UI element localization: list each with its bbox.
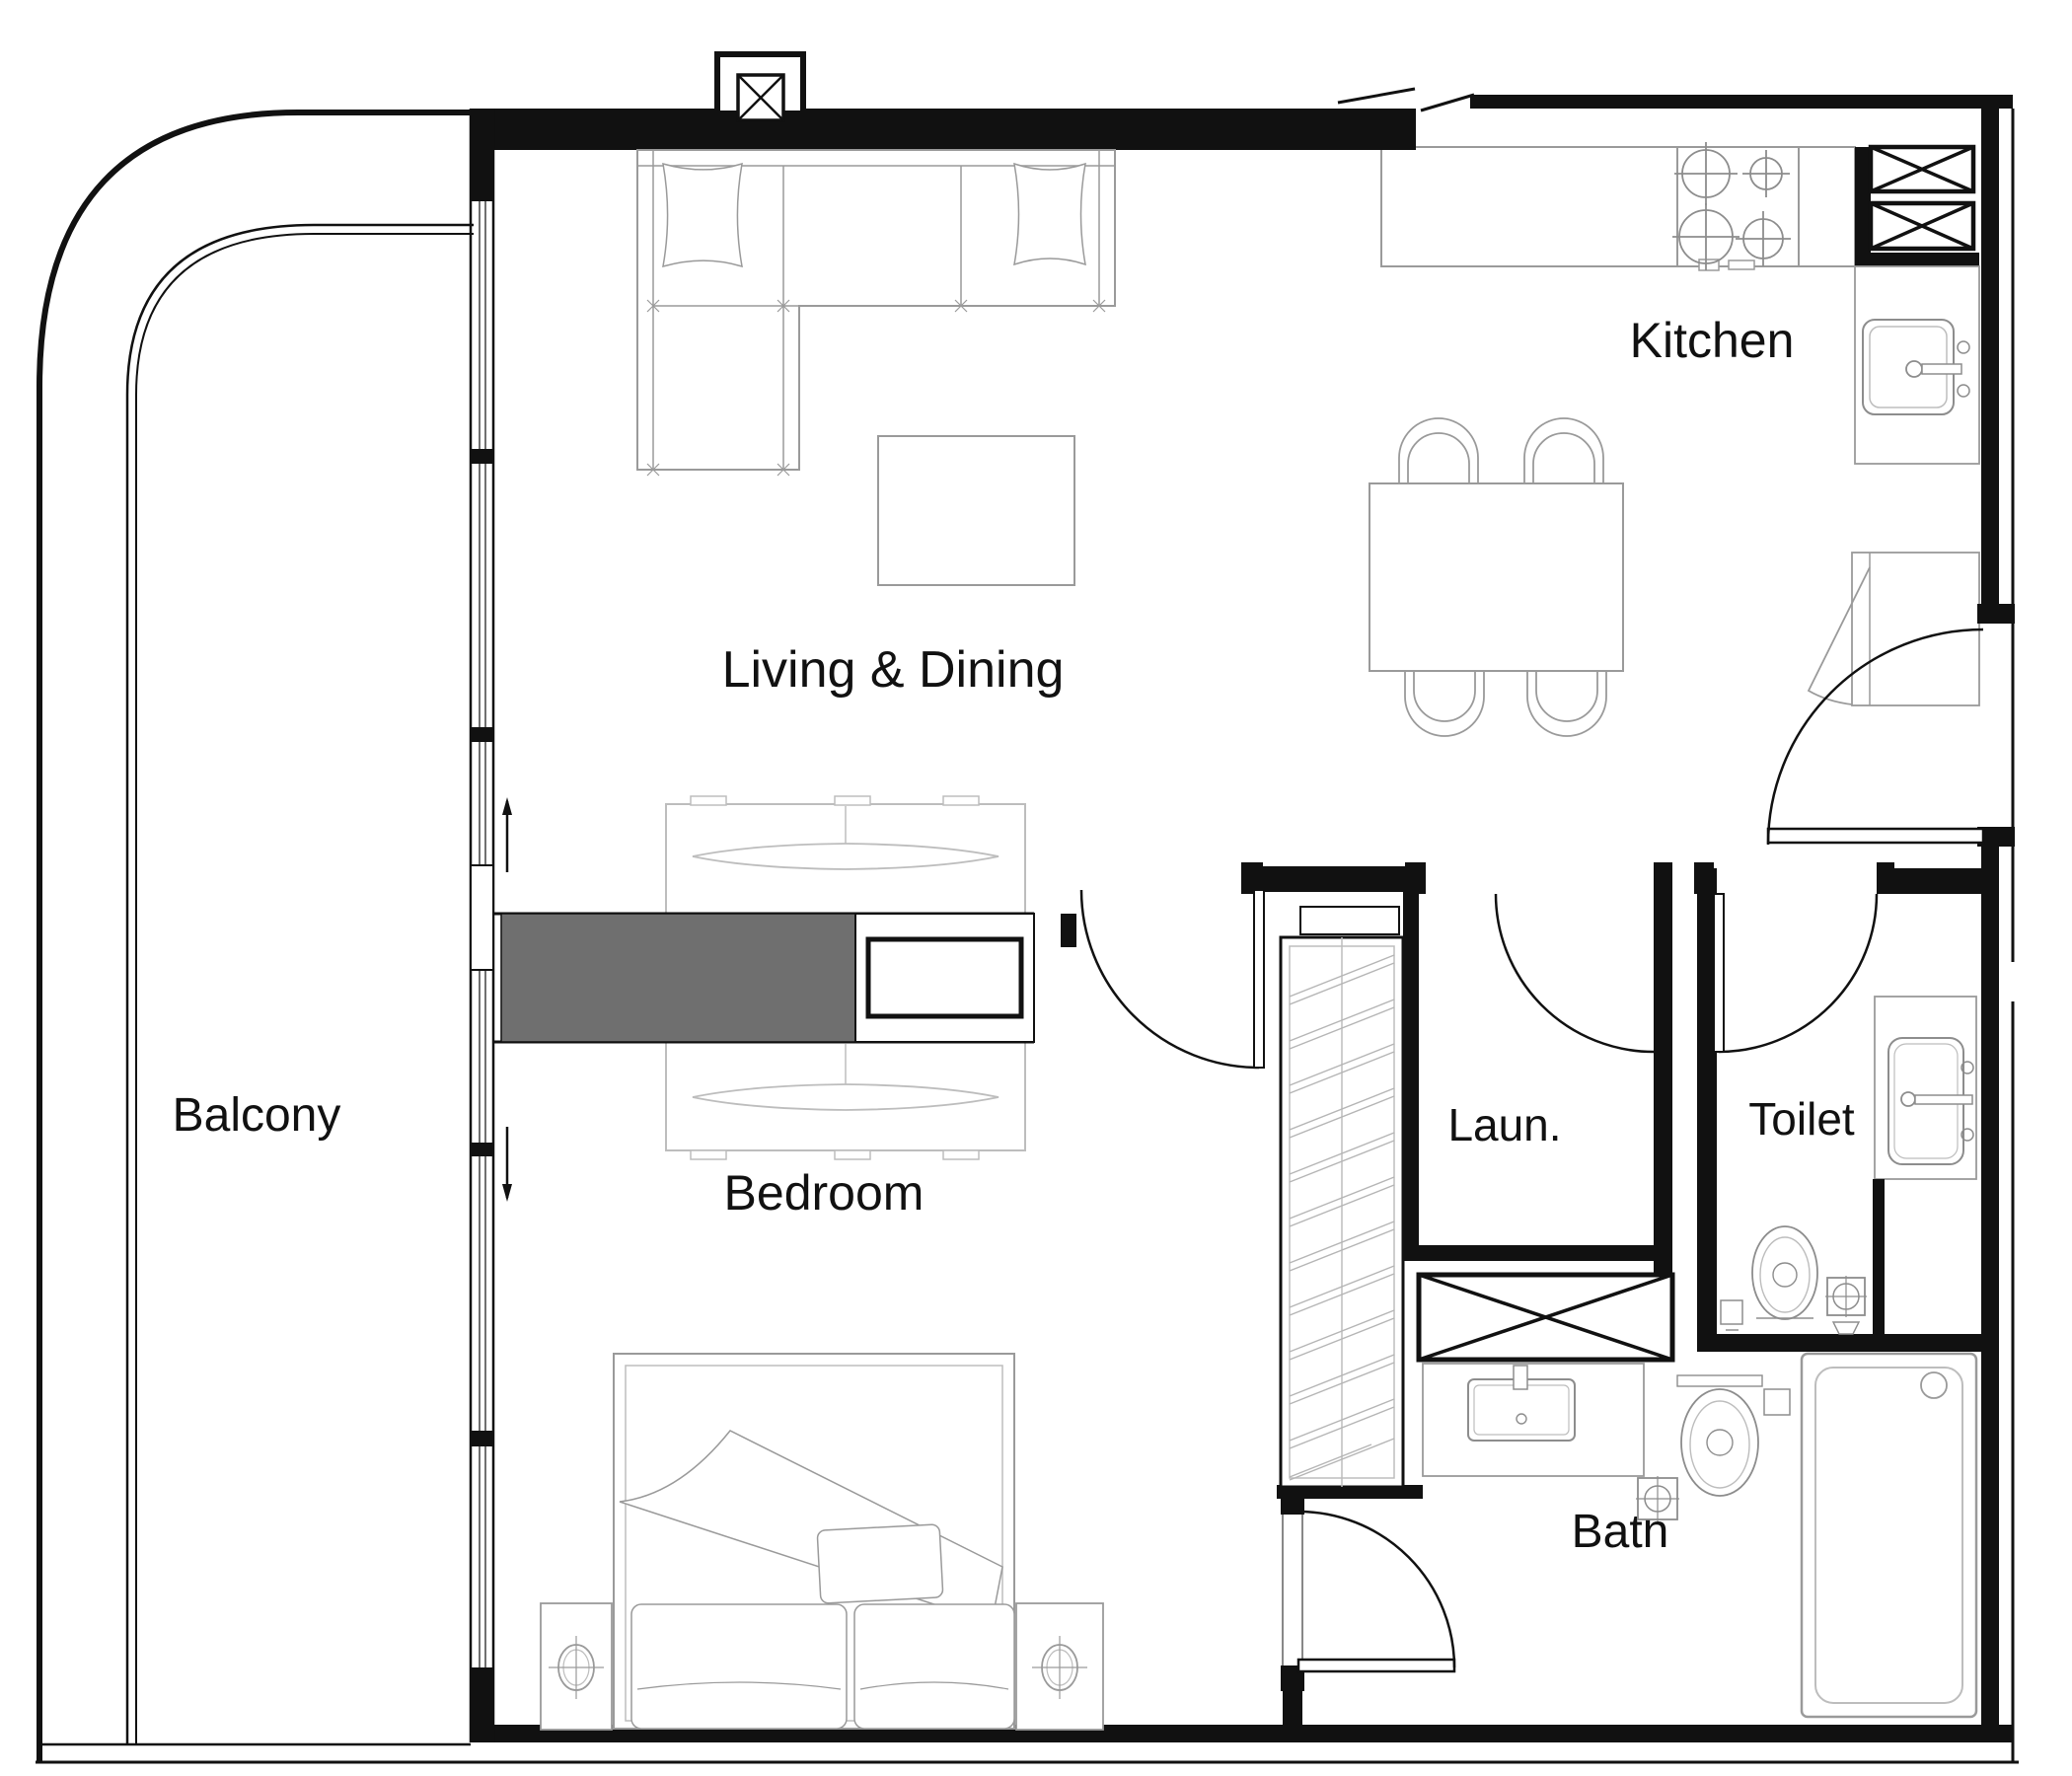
bed-pillow-small — [817, 1524, 943, 1603]
laundry-label: Laun. — [1447, 1099, 1561, 1150]
wardrobe-block — [501, 914, 855, 1042]
console-lower — [666, 1042, 1025, 1159]
vanity-wall-stub — [1873, 1179, 1885, 1334]
bath: Bath — [1423, 1354, 1976, 1717]
bedroom-label: Bedroom — [724, 1165, 925, 1221]
toilet-label: Toilet — [1748, 1093, 1855, 1145]
door-leaf — [1298, 1660, 1454, 1671]
slide-arrow-down-icon — [502, 1127, 512, 1202]
nightstand-right — [1016, 1603, 1103, 1730]
floor-drain-icon — [1636, 1476, 1679, 1521]
bedroom: Bedroom — [541, 1165, 1103, 1730]
bed-pillow — [631, 1604, 847, 1729]
right-wall-lower — [1981, 827, 1999, 1742]
bath-door — [1298, 1512, 1454, 1671]
closet — [1281, 937, 1403, 1487]
door-jamb — [1877, 862, 1894, 894]
bathtub — [1802, 1354, 1976, 1717]
toilet-bottom-wall — [1697, 1334, 1981, 1352]
door-jamb — [1281, 1485, 1304, 1515]
toilet-bowl — [1752, 1226, 1817, 1319]
nightstand-left — [541, 1603, 612, 1730]
door-jamb — [1061, 914, 1076, 947]
counter-item — [1729, 260, 1754, 269]
door-jamb — [1405, 862, 1426, 894]
dining-set — [1369, 418, 1623, 736]
sofa-pillow — [663, 164, 742, 266]
kitchen-corner-wall — [1855, 147, 1871, 266]
storage-shaft-box — [1419, 1275, 1672, 1360]
laundry-right-wall — [1654, 862, 1672, 1273]
shaft-box — [1871, 147, 1973, 191]
bath-wall-stub — [1283, 1689, 1302, 1729]
wall-step-hook — [1338, 89, 1415, 103]
wall-step-diagonal — [1421, 95, 1474, 111]
toilet-vanity — [1875, 997, 1976, 1179]
sofa-pillow — [1014, 164, 1085, 264]
door-jamb — [1977, 604, 2015, 624]
kitchen-counter — [1381, 147, 1855, 270]
bidet-sprayer-icon — [1721, 1300, 1742, 1324]
living-room: Living & Dining — [637, 150, 1115, 699]
living-dining-label: Living & Dining — [722, 641, 1065, 699]
console-upper — [666, 796, 1025, 914]
right-wall-upper — [1981, 109, 1999, 624]
balcony-railing-outer — [127, 225, 474, 1744]
kitchen-sink-unit — [1855, 266, 1979, 464]
kitchen-label: Kitchen — [1630, 313, 1795, 368]
column-shaft — [717, 54, 803, 120]
bath-vanity — [1423, 1364, 1644, 1476]
hall-shelf — [1300, 907, 1399, 934]
slide-arrow-up-icon — [502, 797, 512, 872]
floor-plan-drawing: Balcony — [0, 0, 2072, 1776]
balcony: Balcony — [39, 112, 474, 1762]
floor-drain-icon — [1825, 1276, 1867, 1334]
laundry-bottom-wall — [1403, 1245, 1672, 1261]
door-leaf — [1714, 894, 1724, 1052]
top-wall-left — [471, 109, 1416, 150]
bath-toilet — [1677, 1375, 1790, 1496]
door-leaf — [1768, 829, 1983, 843]
door-leaf — [1254, 890, 1264, 1068]
sofa — [637, 150, 1115, 476]
balcony-label: Balcony — [173, 1089, 341, 1142]
toilet-door — [1714, 894, 1877, 1052]
bed-pillow — [854, 1604, 1014, 1729]
laundry-left-wall — [1403, 892, 1419, 1261]
tv-niche-inner — [868, 939, 1021, 1016]
hall-top-wall — [1245, 866, 1426, 892]
laundry-door — [1496, 894, 1654, 1052]
corner-cabinet — [1809, 553, 1979, 705]
dining-table — [1369, 483, 1623, 671]
laundry: Laun. — [1419, 1099, 1672, 1360]
toilet-top-wall — [1892, 868, 1981, 894]
top-wall-right — [1470, 95, 2013, 109]
coffee-table — [878, 436, 1074, 585]
wardrobe-partition — [493, 796, 1076, 1159]
kitchen-corner-wall — [1855, 253, 1979, 266]
shaft-box — [1871, 203, 1973, 249]
floor-plan: Balcony — [0, 0, 2072, 1776]
faucet-icon — [1514, 1366, 1527, 1389]
bedroom-door — [1081, 890, 1264, 1068]
bed — [614, 1354, 1014, 1729]
wall-junction-block — [471, 865, 493, 970]
balcony-railing-inner — [136, 234, 474, 1744]
balcony-outer-wall — [39, 112, 474, 1762]
